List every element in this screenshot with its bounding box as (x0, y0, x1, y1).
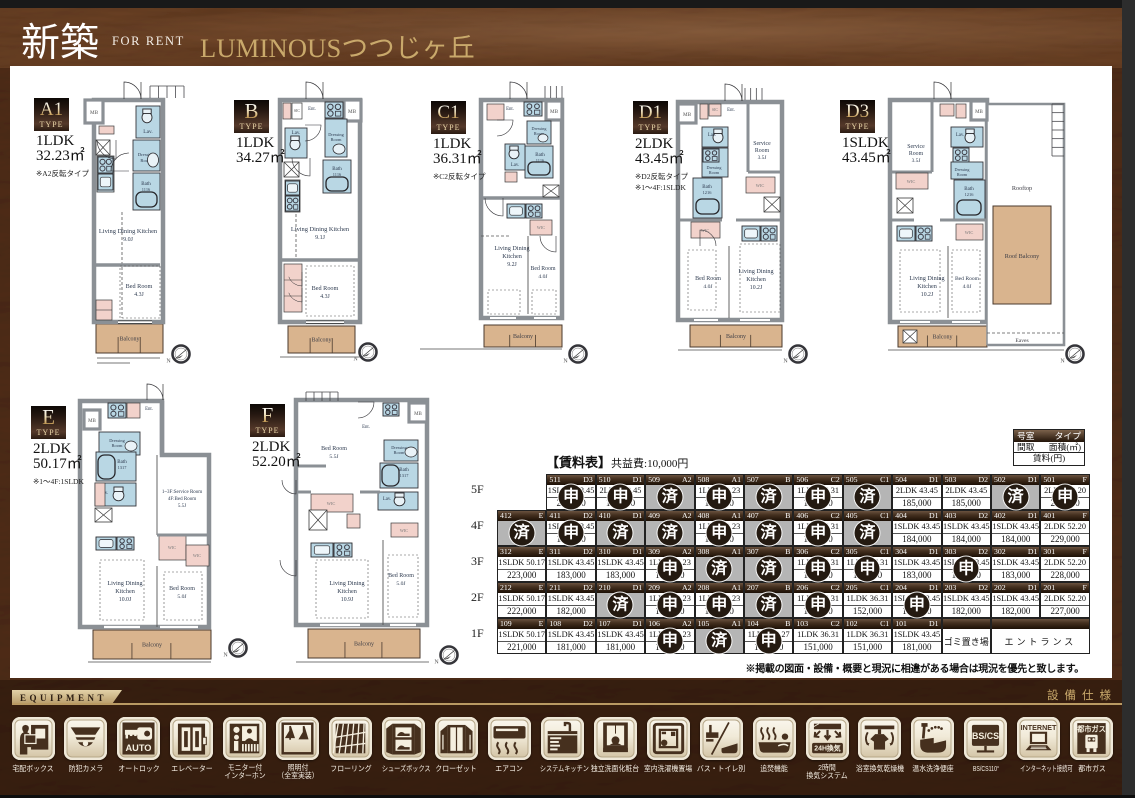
svg-text:Lav.: Lav. (956, 133, 964, 138)
svg-text:Balcony: Balcony (354, 642, 374, 648)
svg-text:Balcony: Balcony (120, 337, 140, 343)
svg-text:Bed Room: Bed Room (531, 266, 556, 272)
svg-text:5.5J: 5.5J (329, 454, 339, 460)
svg-text:Bed Room: Bed Room (126, 283, 153, 290)
svg-text:4F:Bed Room: 4F:Bed Room (168, 497, 196, 502)
svg-text:Lav.: Lav. (292, 131, 301, 136)
svg-text:4.0J: 4.0J (703, 284, 713, 290)
svg-text:MB: MB (90, 110, 99, 116)
svg-text:Kitchen: Kitchen (502, 253, 522, 260)
svg-text:MB: MB (550, 109, 559, 115)
svg-text:Kitchen: Kitchen (746, 276, 766, 283)
svg-text:Eaves: Eaves (1015, 338, 1028, 344)
svg-text:Room: Room (112, 443, 123, 448)
svg-text:Room: Room (957, 172, 968, 177)
svg-text:24H換気: 24H換気 (814, 743, 841, 752)
svg-text:10.0J: 10.0J (119, 597, 132, 603)
svg-text:N: N (166, 359, 171, 365)
svg-text:WIC: WIC (537, 225, 545, 230)
svg-text:1216: 1216 (703, 190, 713, 195)
svg-text:Balcony: Balcony (726, 334, 746, 340)
svg-text:4.0J: 4.0J (963, 284, 972, 290)
svg-text:1116: 1116 (142, 187, 151, 192)
svg-text:MB: MB (88, 419, 96, 424)
svg-text:Lav.: Lav. (143, 129, 152, 135)
svg-text:Bed Room: Bed Room (169, 586, 195, 592)
svg-text:Kitchen: Kitchen (337, 588, 357, 595)
svg-text:10.9J: 10.9J (341, 597, 354, 603)
svg-text:1116: 1116 (333, 172, 342, 177)
svg-text:Balcony: Balcony (933, 335, 953, 341)
svg-text:Bed Room: Bed Room (321, 446, 347, 452)
svg-text:Bed Room: Bed Room (388, 573, 414, 579)
svg-text:1317: 1317 (118, 465, 128, 470)
svg-text:9.1J: 9.1J (315, 235, 326, 241)
svg-text:SIC: SIC (712, 107, 719, 112)
svg-text:都市ガス: 都市ガス (1076, 724, 1106, 733)
svg-text:Balcony: Balcony (142, 643, 162, 649)
svg-text:5.0J: 5.0J (177, 594, 187, 600)
svg-text:4.0J: 4.0J (538, 274, 548, 280)
svg-text:BS/CS: BS/CS (972, 731, 999, 741)
svg-text:Bed Room: Bed Room (312, 285, 339, 292)
svg-text:Room: Room (331, 137, 342, 142)
svg-text:WIC: WIC (327, 501, 336, 506)
svg-text:Living Dining: Living Dining (909, 275, 944, 282)
svg-text:1~3F:Service Room: 1~3F:Service Room (162, 490, 202, 495)
svg-text:Room: Room (394, 450, 405, 455)
svg-text:WIC: WIC (168, 545, 176, 550)
svg-text:Room: Room (755, 148, 770, 154)
svg-text:MB: MB (414, 412, 422, 417)
svg-text:3.5J: 3.5J (912, 158, 921, 164)
svg-text:Lav.: Lav. (708, 133, 716, 138)
svg-text:Ent.: Ent. (308, 107, 316, 112)
svg-text:10.2J: 10.2J (921, 292, 934, 298)
svg-text:N: N (1060, 359, 1065, 365)
svg-text:Service: Service (753, 141, 771, 147)
svg-text:Ent.: Ent. (362, 425, 370, 430)
svg-text:9.0J: 9.0J (123, 237, 134, 243)
svg-text:Bed Room: Bed Room (695, 276, 721, 282)
svg-text:Room: Room (909, 151, 924, 157)
svg-text:Roof Balcony: Roof Balcony (1005, 253, 1040, 260)
svg-text:Ent.: Ent. (727, 108, 735, 113)
svg-text:Living Dining: Living Dining (494, 245, 529, 252)
svg-text:Ent.: Ent. (506, 107, 514, 112)
svg-text:INTERNET: INTERNET (1021, 723, 1057, 731)
svg-text:N: N (434, 660, 439, 666)
svg-text:WIC: WIC (400, 528, 408, 533)
svg-text:Living Dining: Living Dining (329, 580, 364, 587)
svg-text:SIC: SIC (294, 108, 301, 113)
svg-text:WIC: WIC (907, 179, 916, 184)
svg-text:Rooftop: Rooftop (1012, 185, 1032, 192)
svg-text:5.5J: 5.5J (178, 504, 186, 509)
svg-text:N: N (563, 359, 568, 365)
svg-text:4.3J: 4.3J (320, 294, 330, 300)
svg-text:MB: MB (975, 110, 983, 115)
svg-text:Ent.: Ent. (145, 407, 153, 412)
svg-text:3.5J: 3.5J (758, 155, 767, 161)
svg-text:WIC: WIC (965, 230, 974, 235)
svg-text:N: N (223, 653, 228, 659)
svg-text:5.0J: 5.0J (396, 581, 406, 587)
svg-text:9.2J: 9.2J (507, 262, 517, 268)
svg-text:AUTO: AUTO (126, 742, 152, 752)
svg-text:Service: Service (907, 144, 925, 150)
svg-text:Lav.: Lav. (511, 163, 519, 168)
svg-text:WIC: WIC (756, 183, 765, 188)
svg-text:Kitchen: Kitchen (115, 588, 135, 595)
svg-text:Living Dining Kitchen: Living Dining Kitchen (291, 226, 350, 233)
svg-text:4.3J: 4.3J (134, 292, 144, 298)
svg-text:Balcony: Balcony (513, 334, 533, 340)
svg-text:MB: MB (683, 112, 692, 118)
svg-text:Living Dining: Living Dining (738, 268, 773, 275)
svg-text:WIC: WIC (193, 553, 201, 558)
svg-text:Lav.: Lav. (383, 497, 391, 502)
svg-text:MB: MB (348, 109, 357, 115)
svg-text:Living Dining Kitchen: Living Dining Kitchen (99, 228, 158, 235)
svg-text:Room: Room (709, 170, 720, 175)
svg-text:Kitchen: Kitchen (917, 283, 937, 290)
svg-text:Bed Room: Bed Room (955, 276, 980, 282)
svg-text:1317: 1317 (400, 473, 410, 478)
svg-text:1216: 1216 (965, 192, 975, 197)
svg-text:Balcony: Balcony (312, 338, 332, 344)
svg-text:10.2J: 10.2J (750, 285, 763, 291)
svg-text:Living Dining: Living Dining (107, 580, 142, 587)
svg-text:N: N (783, 359, 788, 365)
